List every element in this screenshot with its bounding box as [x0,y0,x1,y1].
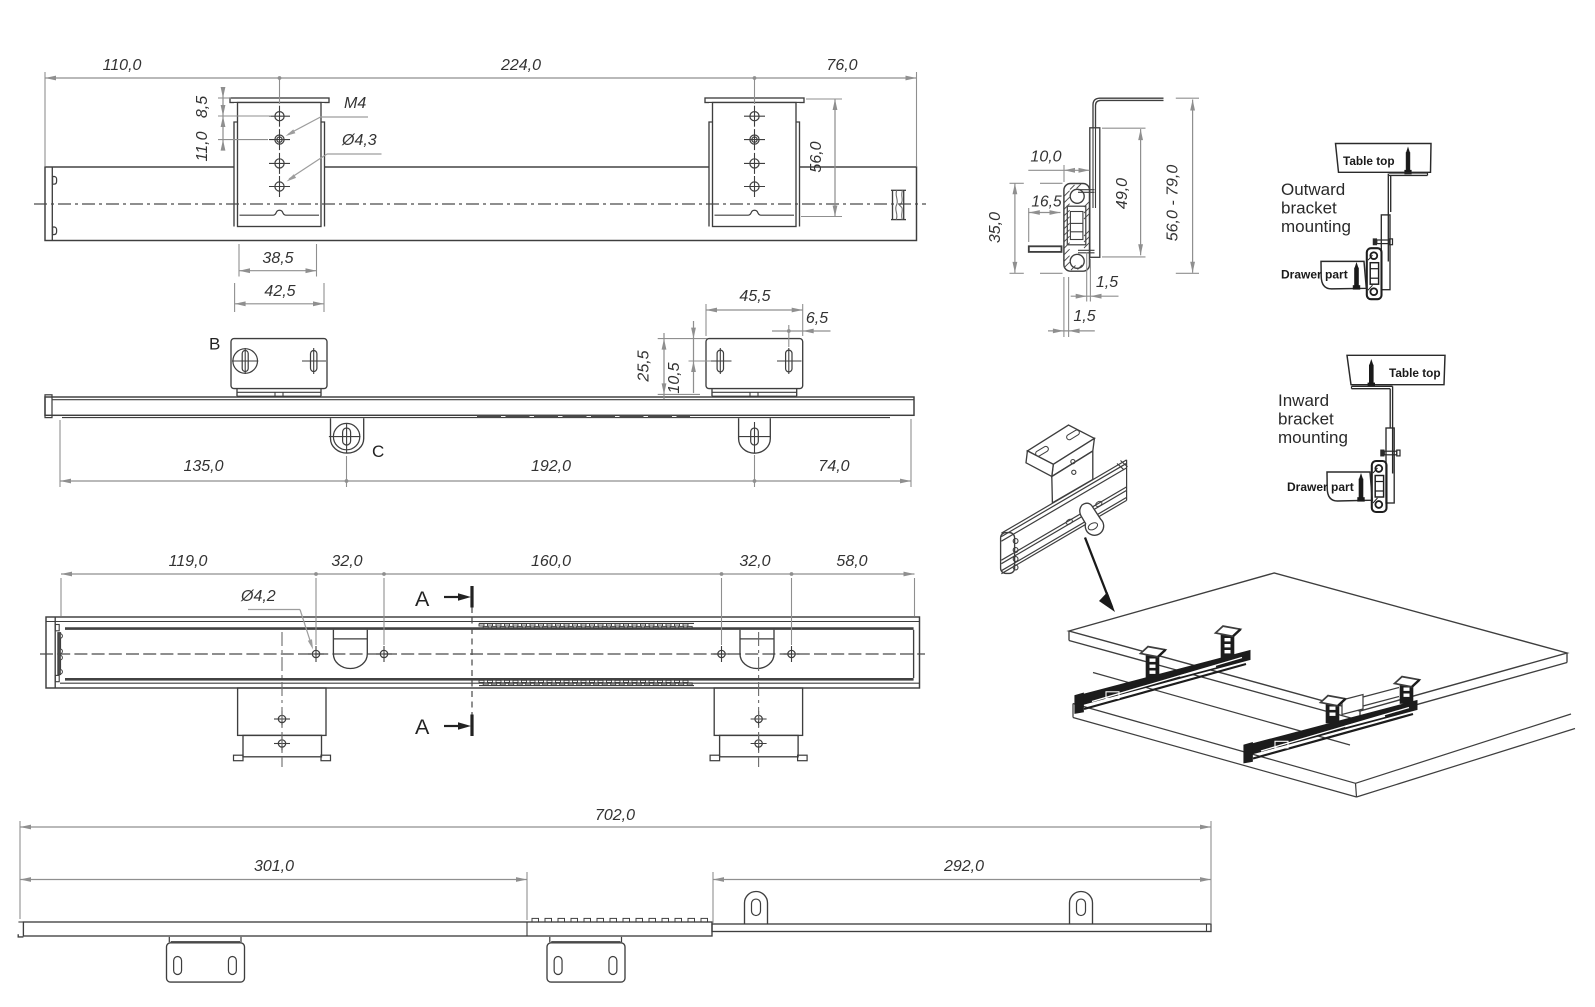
svg-text:45,5: 45,5 [739,288,770,305]
svg-text:32,0: 32,0 [331,553,362,570]
svg-text:38,5: 38,5 [262,250,293,267]
svg-text:A: A [415,715,430,739]
svg-text:224,0: 224,0 [500,57,541,74]
svg-text:C: C [372,442,384,461]
svg-text:10,5: 10,5 [666,362,683,393]
svg-text:bracket: bracket [1278,410,1334,429]
svg-text:16,5: 16,5 [1031,194,1062,211]
svg-text:119,0: 119,0 [169,553,208,570]
svg-text:A: A [415,587,430,611]
svg-text:1,5: 1,5 [1073,308,1095,325]
svg-text:6,5: 6,5 [806,310,828,327]
svg-text:56,0 - 79,0: 56,0 - 79,0 [1165,165,1182,242]
svg-text:25,5: 25,5 [636,350,653,382]
svg-text:56,0: 56,0 [808,141,825,172]
svg-text:1,5: 1,5 [1096,274,1118,291]
svg-text:Outward: Outward [1281,180,1345,199]
svg-text:mounting: mounting [1281,217,1351,236]
svg-text:702,0: 702,0 [595,807,635,824]
svg-text:Inward: Inward [1278,391,1329,410]
svg-text:160,0: 160,0 [531,553,571,570]
svg-text:Drawer part: Drawer part [1281,268,1348,282]
svg-text:135,0: 135,0 [183,458,223,475]
svg-text:11,0: 11,0 [194,131,211,161]
svg-text:292,0: 292,0 [943,858,984,875]
svg-text:49,0: 49,0 [1114,178,1131,209]
svg-text:76,0: 76,0 [826,57,857,74]
svg-text:58,0: 58,0 [836,553,867,570]
svg-text:B: B [209,335,220,354]
svg-text:mounting: mounting [1278,428,1348,447]
svg-text:Ø4,3: Ø4,3 [341,132,377,149]
svg-text:8,5: 8,5 [194,96,211,118]
svg-text:110,0: 110,0 [103,57,142,74]
svg-text:42,5: 42,5 [264,283,295,300]
svg-text:M4: M4 [344,95,366,112]
svg-text:Table top: Table top [1389,366,1441,380]
svg-text:301,0: 301,0 [254,858,294,875]
svg-text:Ø4,2: Ø4,2 [240,588,276,605]
svg-text:Table top: Table top [1343,154,1395,168]
svg-text:bracket: bracket [1281,199,1337,218]
svg-text:35,0: 35,0 [987,212,1004,243]
svg-text:10,0: 10,0 [1030,149,1061,166]
svg-text:32,0: 32,0 [739,553,770,570]
svg-text:192,0: 192,0 [531,458,571,475]
svg-text:Drawer part: Drawer part [1287,480,1354,494]
svg-text:74,0: 74,0 [818,458,849,475]
